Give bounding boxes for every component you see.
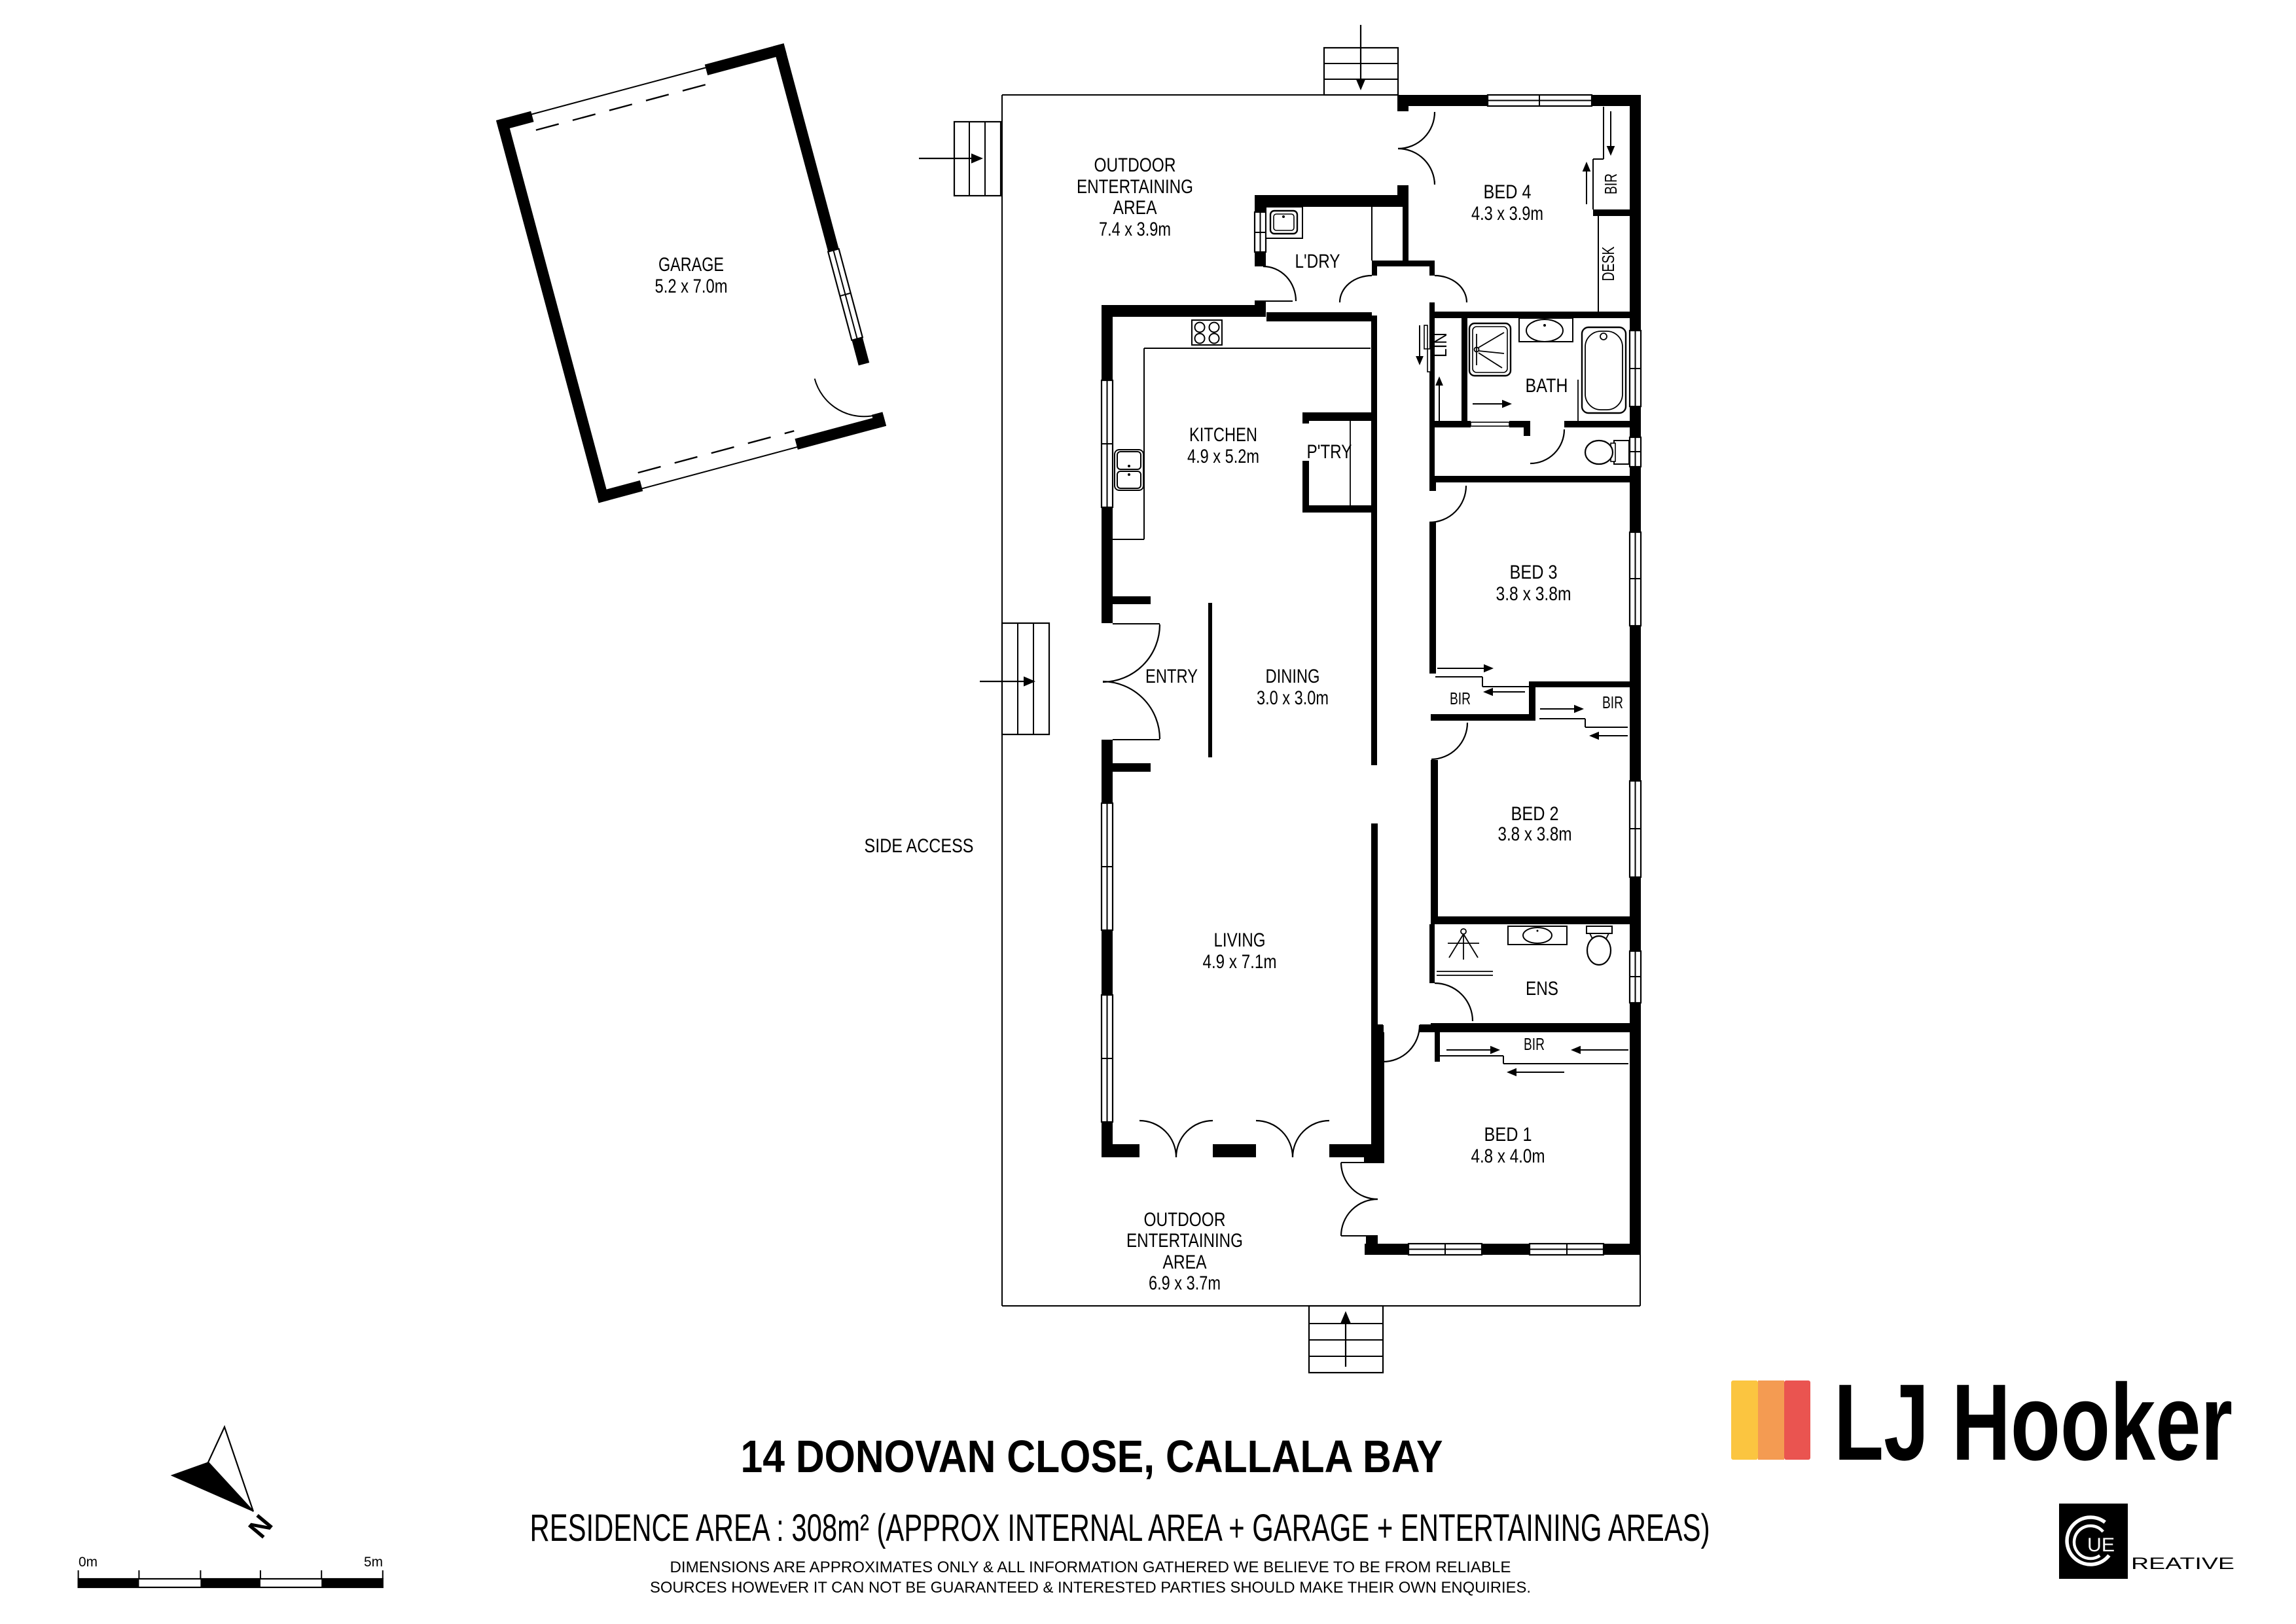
svg-text:6.9 x 3.7m: 6.9 x 3.7m (1149, 1272, 1221, 1294)
svg-text:4.3 x 3.9m: 4.3 x 3.9m (1471, 203, 1543, 225)
svg-text:AREA: AREA (1163, 1252, 1207, 1273)
svg-text:LIVING: LIVING (1214, 929, 1266, 951)
svg-text:OUTDOOR: OUTDOOR (1144, 1209, 1226, 1231)
svg-text:BIR: BIR (1450, 689, 1471, 708)
svg-text:BIR: BIR (1524, 1034, 1545, 1054)
svg-text:OUTDOOR: OUTDOOR (1094, 154, 1176, 176)
svg-text:0m: 0m (79, 1555, 98, 1570)
svg-text:3.0 x 3.0m: 3.0 x 3.0m (1257, 687, 1329, 709)
svg-text:GARAGE: GARAGE (658, 254, 724, 276)
svg-text:DIMENSIONS ARE APPROXIMATES ON: DIMENSIONS ARE APPROXIMATES ONLY & ALL I… (670, 1559, 1511, 1576)
svg-text:5m: 5m (364, 1555, 383, 1570)
svg-text:DINING: DINING (1266, 666, 1320, 687)
svg-text:BIR: BIR (1602, 693, 1623, 712)
svg-text:L'DRY: L'DRY (1295, 251, 1340, 272)
svg-text:SIDE ACCESS: SIDE ACCESS (865, 835, 974, 857)
svg-text:3.8 x 3.8m: 3.8 x 3.8m (1496, 583, 1571, 605)
svg-text:REATIVE: REATIVE (2131, 1555, 2234, 1573)
svg-text:ENS: ENS (1526, 978, 1558, 1000)
svg-text:4.8 x 4.0m: 4.8 x 4.0m (1471, 1146, 1545, 1167)
svg-text:SOURCES HOWEvER IT CAN NOT BE: SOURCES HOWEvER IT CAN NOT BE GUARANTEED… (650, 1579, 1531, 1597)
svg-text:BED 2: BED 2 (1511, 803, 1559, 825)
svg-text:4.9 x 7.1m: 4.9 x 7.1m (1203, 951, 1277, 973)
svg-text:3.8 x 3.8m: 3.8 x 3.8m (1498, 823, 1572, 845)
svg-text:4.9 x 5.2m: 4.9 x 5.2m (1187, 446, 1259, 467)
svg-text:BED 4: BED 4 (1484, 181, 1532, 203)
svg-text:BED 1: BED 1 (1484, 1124, 1532, 1146)
svg-text:KITCHEN: KITCHEN (1189, 424, 1257, 446)
svg-text:7.4 x 3.9m: 7.4 x 3.9m (1099, 219, 1171, 240)
svg-text:5.2 x 7.0m: 5.2 x 7.0m (655, 276, 728, 297)
svg-text:UE: UE (2087, 1534, 2115, 1556)
svg-text:14 DONOVAN CLOSE, CALLALA BAY: 14 DONOVAN CLOSE, CALLALA BAY (741, 1431, 1443, 1482)
svg-text:BIR: BIR (1601, 173, 1621, 194)
svg-text:DESK: DESK (1598, 246, 1618, 281)
svg-text:LIN: LIN (1431, 333, 1450, 357)
svg-text:RESIDENCE AREA : 308m² (APPRO: RESIDENCE AREA : 308m² (APPROX INTERNAL … (530, 1507, 1710, 1549)
svg-text:LJ Hooker: LJ Hooker (1834, 1362, 2233, 1483)
svg-text:N: N (242, 1509, 279, 1543)
svg-text:AREA: AREA (1113, 197, 1157, 219)
svg-text:ENTRY: ENTRY (1145, 666, 1198, 687)
svg-text:BED 3: BED 3 (1510, 562, 1558, 583)
svg-text:P'TRY: P'TRY (1307, 441, 1352, 463)
svg-text:ENTERTAINING: ENTERTAINING (1077, 176, 1193, 198)
svg-text:ENTERTAINING: ENTERTAINING (1126, 1230, 1243, 1252)
svg-text:BATH: BATH (1526, 375, 1568, 397)
